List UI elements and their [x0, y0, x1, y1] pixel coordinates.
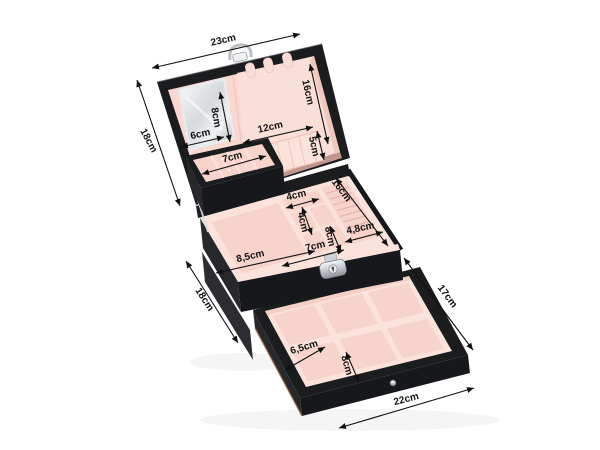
mirror — [179, 79, 234, 150]
jewelry-box-scene: 23cm 18cm 8cm 6cm 16cm 12cm 5cm 7cm — [0, 0, 600, 450]
product-image: 23cm 18cm 8cm 6cm 16cm 12cm 5cm 7cm — [0, 0, 600, 450]
drawer-knob[interactable] — [390, 380, 396, 386]
